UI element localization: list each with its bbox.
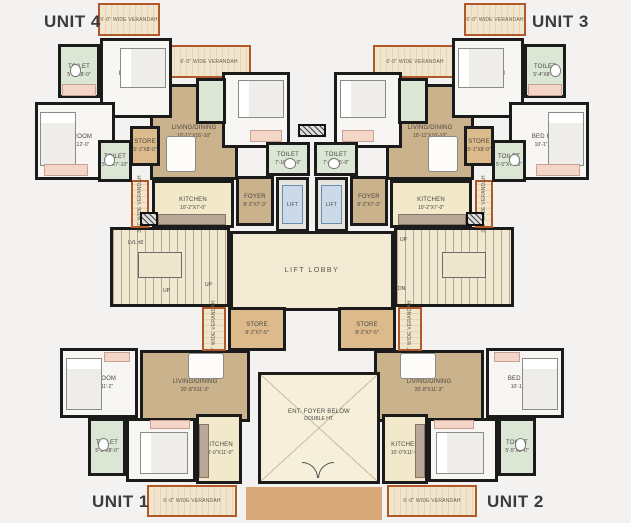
- store-unit4-dims: 5'-1"X8'-0": [133, 147, 156, 153]
- foyer-unit4-label: FOYER8'-2"X7'-3": [239, 179, 271, 223]
- store-unit4-name: STORE: [134, 139, 156, 146]
- wc-icon: [104, 154, 115, 166]
- shaft-icon: [298, 124, 326, 137]
- landing-icon: [442, 252, 486, 278]
- wc-icon: [550, 64, 561, 77]
- lift-lobby: LIFT LOBBY: [230, 231, 394, 311]
- veranda-unit4-top-label: 6'-0" WIDE VERANDAH: [100, 5, 158, 34]
- veranda-unit4-top: 6'-0" WIDE VERANDAH: [98, 3, 160, 36]
- veranda-store-right-label: 4'-2" WIDE VERANDAH: [390, 319, 430, 339]
- veranda-store-left: 4'-2" WIDE VERANDAH: [202, 307, 226, 351]
- store-lobby-left: STORE8'-2"X7'-5": [228, 307, 286, 351]
- shaft-icon: [466, 212, 484, 226]
- wc-icon: [70, 64, 81, 77]
- living-dining-unit1-dims: 20'-8"X11'-3": [181, 387, 209, 393]
- bed-v-icon: [66, 358, 102, 410]
- lift-lobby-name: LIFT LOBBY: [285, 267, 340, 275]
- wardrobe-icon: [434, 420, 474, 429]
- store-unit3-label: STORE5'-1"X8'-0": [467, 129, 491, 163]
- veranda-unit2-name: 6'-0" WIDE VERANDAH: [403, 498, 460, 504]
- kitchen-unit4-name: KITCHEN: [179, 197, 207, 204]
- counter-icon: [398, 214, 466, 225]
- kitchen-unit1-name: KITCHEN: [205, 442, 233, 449]
- wc-icon: [509, 154, 520, 166]
- wc-icon: [515, 438, 526, 451]
- living-dining-unit3-name: LIVING/DINING: [408, 125, 453, 132]
- lift-car: [321, 185, 342, 224]
- veranda-unit2-label: 6'-0" WIDE VERANDAH: [389, 487, 475, 515]
- veranda-unit3-top-label: 6'-0" WIDE VERANDAH: [466, 5, 524, 34]
- porch-entry: [246, 487, 382, 520]
- lift-lobby-label: LIFT LOBBY: [233, 234, 391, 308]
- store-unit4-label: STORE5'-1"X8'-0": [133, 129, 157, 163]
- table-icon: [188, 353, 224, 379]
- veranda-store-left-name: 4'-2" WIDE VERANDAH: [211, 300, 217, 357]
- veranda-unit1: 6'-0" WIDE VERANDAH: [147, 485, 237, 517]
- foyer-unit4-dims: 8'-2"X7'-3": [243, 202, 266, 208]
- store-unit3-dims: 5'-1"X8'-0": [467, 147, 490, 153]
- bed-v-icon: [40, 112, 76, 166]
- table-icon: [400, 353, 436, 379]
- unit-title-3: UNIT 1: [92, 492, 149, 512]
- landing-icon: [138, 252, 182, 278]
- living-dining-unit2-dims: 20'-8"X11'-3": [415, 387, 443, 393]
- veranda-unit2: 6'-0" WIDE VERANDAH: [387, 485, 477, 517]
- bed-v-icon: [522, 358, 558, 410]
- store-lobby-right-label: STORE8'-2"X7'-5": [341, 310, 393, 348]
- foyer-unit4-name: FOYER: [244, 194, 266, 201]
- entrance-foyer-void: ENT. FOYER BELOWDOUBLE HT.: [258, 372, 380, 484]
- table-icon: [166, 136, 196, 172]
- entrance-foyer-void-label: ENT. FOYER BELOWDOUBLE HT.: [261, 375, 377, 481]
- foyer-unit3: FOYER8'-2"X7'-3": [350, 176, 388, 226]
- store-lobby-left-name: STORE: [246, 322, 268, 329]
- kitchen-unit3-name: KITCHEN: [417, 197, 445, 204]
- store-unit3: STORE5'-1"X8'-0": [464, 126, 494, 166]
- kitchen-unit1-dims: 10'-0"X11'-0": [205, 450, 233, 456]
- living-dining-unit1-name: LIVING/DINING: [173, 379, 218, 386]
- wardrobe-icon: [62, 84, 96, 96]
- store-lobby-left-label: STORE8'-2"X7'-5": [231, 310, 283, 348]
- veranda-unit4-top-name: 6'-0" WIDE VERANDAH: [100, 17, 157, 23]
- wc-icon: [328, 158, 340, 169]
- veranda-store-right-name: 4'-2" WIDE VERANDAH: [407, 300, 413, 357]
- veranda-unit3-top-name: 6'-0" WIDE VERANDAH: [466, 17, 523, 23]
- living-dining-unit2-name: LIVING/DINING: [407, 379, 452, 386]
- lift-car: [282, 185, 303, 224]
- lift-1: LIFT: [276, 177, 309, 232]
- store-lobby-right-name: STORE: [356, 322, 378, 329]
- unit-title-2: UNIT 3: [532, 12, 589, 32]
- living-dining-unit4-name: LIVING/DINING: [172, 125, 217, 132]
- veranda-store-right: 4'-2" WIDE VERANDAH: [398, 307, 422, 351]
- toilet-unit3-small: [398, 78, 428, 124]
- unit-title-4: UNIT 2: [487, 492, 544, 512]
- wardrobe-icon: [528, 84, 562, 96]
- store-lobby-left-dims: 8'-2"X7'-5": [245, 330, 268, 336]
- store-unit4: STORE5'-1"X8'-0": [130, 126, 160, 166]
- wardrobe-icon: [536, 164, 580, 176]
- veranda-unit3-mid-name: 6'-0" WIDE VERANDAH: [386, 59, 443, 65]
- entrance-foyer-void-name: ENT. FOYER BELOW: [288, 409, 350, 416]
- wardrobe-icon: [250, 130, 282, 142]
- kitchen-unit3-dims: 10'-2"X7'-0": [418, 205, 444, 211]
- wardrobe-icon: [104, 352, 130, 362]
- bed-h-icon: [120, 48, 166, 88]
- unit-title-1: UNIT 4: [44, 12, 101, 32]
- entrance-foyer-void-dims: DOUBLE HT.: [304, 416, 333, 422]
- bed-h-icon: [458, 48, 504, 88]
- veranda-unit1-label: 6'-0" WIDE VERANDAH: [149, 487, 235, 515]
- bed-h-icon: [436, 432, 484, 474]
- counter-icon: [158, 214, 226, 225]
- wardrobe-icon: [494, 352, 520, 362]
- bed-v-icon: [548, 112, 584, 166]
- wardrobe-icon: [342, 130, 374, 142]
- lift-2: LIFT: [315, 177, 348, 232]
- wc-icon: [98, 438, 109, 451]
- wardrobe-icon: [44, 164, 88, 176]
- counter-icon: [199, 424, 209, 478]
- foyer-unit4: FOYER8'-2"X7'-3": [236, 176, 274, 226]
- store-lobby-right: STORE8'-2"X7'-5": [338, 307, 396, 351]
- store-unit3-name: STORE: [468, 139, 490, 146]
- shaft-icon: [140, 212, 158, 226]
- bed-h-icon: [238, 80, 284, 118]
- foyer-unit3-label: FOYER8'-2"X7'-3": [353, 179, 385, 223]
- foyer-unit3-dims: 8'-2"X7'-3": [357, 202, 380, 208]
- floor-plan: LIVING/DINING10'-11"X16'-10"LIVING/DININ…: [0, 0, 631, 523]
- toilet-unit4-small: [196, 78, 226, 124]
- bed-h-icon: [140, 432, 188, 474]
- counter-icon: [415, 424, 425, 478]
- wc-icon: [284, 158, 296, 169]
- kitchen-unit4-dims: 10'-2"X7'-0": [180, 205, 206, 211]
- veranda-unit4-mid-name: 6'-0" WIDE VERANDAH: [180, 59, 237, 65]
- store-lobby-right-dims: 8'-2"X7'-5": [355, 330, 378, 336]
- table-icon: [428, 136, 458, 172]
- bed-h-icon: [340, 80, 386, 118]
- wardrobe-icon: [150, 420, 190, 429]
- foyer-unit3-name: FOYER: [358, 194, 380, 201]
- veranda-unit1-name: 6'-0" WIDE VERANDAH: [163, 498, 220, 504]
- veranda-unit3-top: 6'-0" WIDE VERANDAH: [464, 3, 526, 36]
